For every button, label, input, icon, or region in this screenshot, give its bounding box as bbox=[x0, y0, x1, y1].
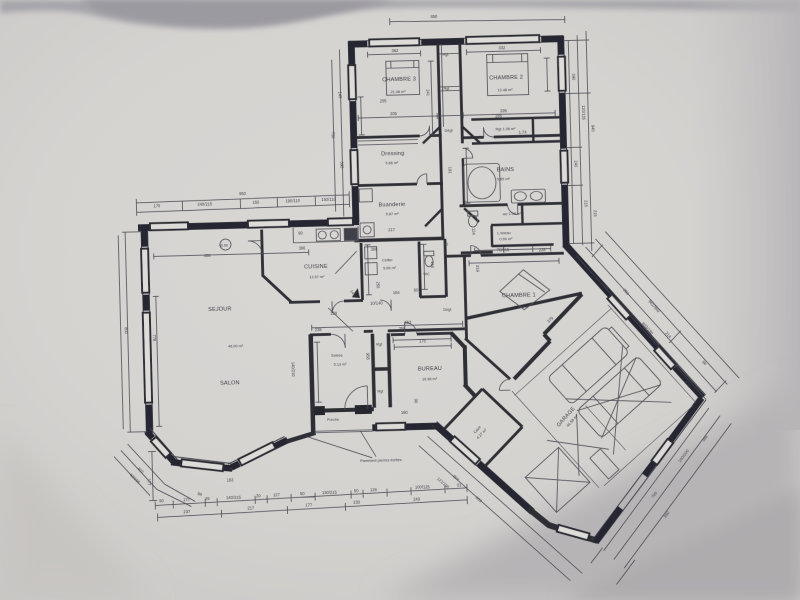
svg-text:800: 800 bbox=[124, 327, 129, 335]
svg-text:362: 362 bbox=[391, 48, 399, 53]
svg-text:Rgt: Rgt bbox=[443, 53, 450, 57]
svg-text:730: 730 bbox=[331, 132, 336, 140]
svg-text:SEJOUR: SEJOUR bbox=[208, 306, 232, 313]
svg-text:Dressing: Dressing bbox=[381, 151, 404, 158]
svg-text:177: 177 bbox=[147, 479, 152, 487]
svg-text:Rgt 1.06 m²: Rgt 1.06 m² bbox=[496, 127, 517, 132]
svg-text:552: 552 bbox=[405, 320, 413, 325]
svg-text:205: 205 bbox=[390, 111, 398, 116]
svg-text:217: 217 bbox=[247, 505, 255, 510]
svg-text:Entrée: Entrée bbox=[331, 354, 342, 358]
svg-text:120/135: 120/135 bbox=[581, 105, 586, 121]
svg-text:5.87 m²: 5.87 m² bbox=[386, 212, 400, 216]
svg-text:21.48 m²: 21.48 m² bbox=[391, 90, 407, 94]
svg-text:CHAMBRE 2: CHAMBRE 2 bbox=[489, 75, 523, 82]
svg-text:wc 1.03 m²: wc 1.03 m² bbox=[503, 212, 522, 217]
svg-text:398: 398 bbox=[371, 247, 379, 252]
svg-text:850: 850 bbox=[431, 14, 439, 19]
svg-text:319: 319 bbox=[475, 265, 480, 273]
svg-text:150: 150 bbox=[252, 200, 260, 205]
svg-text:230: 230 bbox=[353, 500, 361, 505]
svg-text:386: 386 bbox=[299, 245, 307, 250]
svg-text:217: 217 bbox=[388, 227, 396, 232]
svg-text:124: 124 bbox=[471, 228, 476, 236]
svg-text:184: 184 bbox=[393, 290, 401, 295]
svg-text:215: 215 bbox=[583, 200, 588, 208]
svg-text:1.74: 1.74 bbox=[519, 130, 528, 135]
svg-text:Rgt: Rgt bbox=[377, 389, 384, 393]
svg-text:130/215: 130/215 bbox=[322, 490, 338, 495]
svg-text:450: 450 bbox=[204, 253, 212, 258]
svg-text:Porche: Porche bbox=[327, 418, 339, 422]
svg-text:18.71 m²: 18.71 m² bbox=[514, 305, 530, 309]
svg-text:240: 240 bbox=[573, 160, 578, 168]
svg-text:238: 238 bbox=[315, 327, 323, 332]
svg-text:145: 145 bbox=[338, 91, 343, 99]
svg-text:140/215: 140/215 bbox=[226, 495, 242, 500]
svg-text:140/210: 140/210 bbox=[291, 362, 296, 378]
svg-text:L.tineau: L.tineau bbox=[497, 231, 511, 235]
svg-text:191: 191 bbox=[448, 167, 453, 175]
svg-text:240/215: 240/215 bbox=[197, 201, 213, 206]
svg-text:950: 950 bbox=[239, 191, 247, 196]
svg-text:183: 183 bbox=[227, 477, 235, 482]
svg-text:46.00 m²: 46.00 m² bbox=[228, 344, 244, 348]
svg-text:128: 128 bbox=[370, 487, 378, 492]
svg-text:100/125: 100/125 bbox=[415, 484, 431, 489]
svg-text:SALON: SALON bbox=[220, 380, 240, 387]
svg-text:358: 358 bbox=[399, 326, 407, 331]
svg-text:295: 295 bbox=[500, 108, 508, 113]
svg-text:395: 395 bbox=[339, 161, 344, 169]
svg-text:141: 141 bbox=[425, 89, 430, 97]
svg-text:150/110: 150/110 bbox=[321, 197, 336, 202]
svg-text:10/140: 10/140 bbox=[370, 300, 383, 305]
svg-text:127: 127 bbox=[273, 492, 281, 497]
svg-text:215: 215 bbox=[593, 210, 598, 218]
svg-text:295: 295 bbox=[380, 98, 388, 103]
svg-text:180: 180 bbox=[401, 410, 409, 415]
svg-text:10.96 m²: 10.96 m² bbox=[422, 377, 438, 381]
svg-text:249: 249 bbox=[413, 496, 421, 501]
svg-text:190/110: 190/110 bbox=[285, 198, 300, 203]
svg-text:940: 940 bbox=[590, 125, 595, 133]
svg-text:390: 390 bbox=[571, 73, 576, 81]
svg-text:177: 177 bbox=[183, 497, 191, 502]
svg-text:255: 255 bbox=[376, 282, 381, 290]
svg-text:5.85 m²: 5.85 m² bbox=[497, 177, 511, 181]
svg-text:CHAMBRE 1: CHAMBRE 1 bbox=[502, 292, 536, 299]
svg-text:237: 237 bbox=[183, 509, 191, 514]
svg-text:CHAMBRE 3: CHAMBRE 3 bbox=[382, 77, 416, 84]
svg-text:Rgt: Rgt bbox=[376, 342, 383, 346]
svg-text:12.97 m²: 12.97 m² bbox=[309, 275, 325, 279]
svg-text:BUREAU: BUREAU bbox=[418, 366, 442, 373]
svg-text:Dégt: Dégt bbox=[445, 129, 454, 133]
svg-text:332: 332 bbox=[498, 45, 506, 50]
svg-text:Dégt: Dégt bbox=[443, 308, 452, 312]
svg-text:5.13 m²: 5.13 m² bbox=[334, 362, 348, 366]
svg-text:CUISINE: CUISINE bbox=[304, 264, 328, 271]
svg-text:+0.00: +0.00 bbox=[218, 243, 228, 247]
svg-text:778: 778 bbox=[152, 334, 157, 342]
svg-text:5.66 m²: 5.66 m² bbox=[385, 161, 399, 165]
svg-text:177: 177 bbox=[305, 502, 313, 507]
svg-text:Cellier: Cellier bbox=[382, 258, 394, 262]
svg-text:164: 164 bbox=[430, 261, 435, 269]
svg-text:228: 228 bbox=[539, 247, 547, 252]
svg-text:0.90 m²: 0.90 m² bbox=[499, 237, 513, 241]
svg-text:12.48 m²: 12.48 m² bbox=[497, 88, 513, 92]
svg-text:5.06 m²: 5.06 m² bbox=[383, 266, 397, 270]
svg-text:Buanderie: Buanderie bbox=[378, 202, 405, 209]
svg-text:BAINS: BAINS bbox=[497, 167, 515, 173]
svg-text:170: 170 bbox=[153, 203, 161, 208]
svg-text:Rgt: Rgt bbox=[443, 87, 450, 91]
svg-text:958: 958 bbox=[365, 353, 370, 361]
svg-text:70/215: 70/215 bbox=[497, 247, 510, 252]
